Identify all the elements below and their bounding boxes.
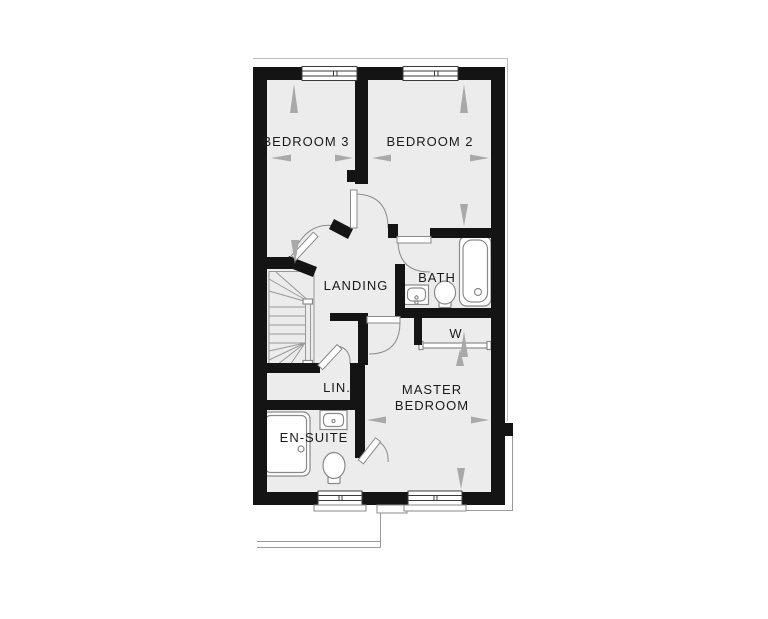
porch-step: [377, 505, 407, 513]
wall-bath-bottom: [395, 308, 491, 318]
property-boundary-line: [257, 513, 381, 548]
room-label-linen: LIN.: [323, 380, 351, 395]
window-sill-ensuite: [314, 505, 366, 511]
room-label-bedroom3: BEDROOM 3: [262, 134, 349, 149]
window-master: [404, 491, 466, 511]
room-label-bedroom2: BEDROOM 2: [386, 134, 473, 149]
door-leaf-master: [367, 317, 400, 324]
wall-meter-box: [502, 423, 513, 436]
wall-linen-top: [267, 363, 320, 373]
stair-newel-top: [303, 299, 313, 304]
room-label-bath: BATH: [418, 270, 456, 285]
room-label-ensuite: EN-SUITE: [280, 430, 349, 445]
door-leaf-bath: [397, 237, 431, 244]
room-label-landing: LANDING: [324, 278, 389, 293]
room-label-wardrobe: W: [449, 326, 462, 341]
floor-plan-page: BEDROOM 3 BEDROOM 2 LANDING BATH W LIN. …: [0, 0, 768, 619]
sink-bath: [405, 285, 429, 305]
wall-bedroom-divider: [355, 80, 368, 184]
wardrobe-rail: [419, 342, 491, 350]
wall-ensuite-top: [267, 400, 365, 410]
window-ensuite: [314, 491, 366, 511]
floor-plan-drawing: BEDROOM 3 BEDROOM 2 LANDING BATH W LIN. …: [0, 0, 768, 619]
room-label-master-line2: BEDROOM: [395, 398, 469, 413]
window-bedroom3: [302, 67, 357, 81]
window-sill-master: [404, 505, 466, 511]
bathtub: [460, 236, 492, 306]
window-bedroom2: [403, 67, 458, 81]
room-label-master-line1: MASTER: [402, 382, 462, 397]
wall-bath-top: [430, 228, 491, 238]
door-leaf-bedroom2: [351, 190, 358, 228]
